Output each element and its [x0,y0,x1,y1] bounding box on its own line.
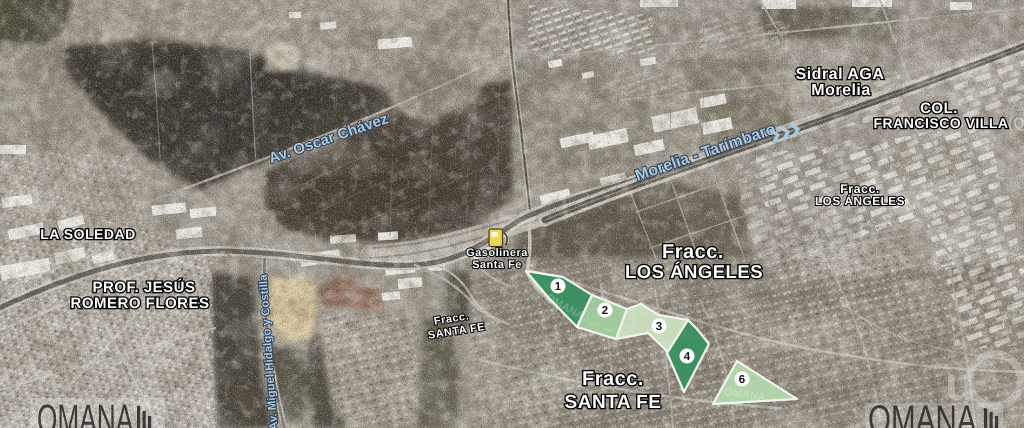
svg-text:(Q: (Q [1008,115,1024,132]
svg-text:6: 6 [739,374,745,386]
svg-text:FRANCISCO VILLA: FRANCISCO VILLA [873,115,1008,131]
svg-text:Sidral AGA: Sidral AGA [796,66,885,83]
svg-text:4: 4 [684,351,691,363]
svg-text:Fracc.: Fracc. [582,368,644,390]
svg-text:3: 3 [656,321,662,333]
svg-text:LOS ÁNGELES: LOS ÁNGELES [815,194,905,208]
svg-text:LOS ÁNGELES: LOS ÁNGELES [625,261,763,282]
svg-text:ROMERO FLORES: ROMERO FLORES [70,295,209,312]
svg-text:Fracc.: Fracc. [662,241,724,263]
svg-text:Santa Fe: Santa Fe [472,259,522,271]
svg-text:1: 1 [555,281,562,293]
svg-text:Gasolinera: Gasolinera [466,247,528,259]
svg-text:LA SOLEDAD: LA SOLEDAD [40,226,135,242]
svg-text:OMANA: OMANA [37,396,134,428]
svg-text:PROF. JESÚS: PROF. JESÚS [92,278,195,296]
svg-text:2: 2 [602,305,608,317]
svg-text:Morelia: Morelia [811,82,871,99]
svg-text:SANTA FE: SANTA FE [565,392,662,413]
